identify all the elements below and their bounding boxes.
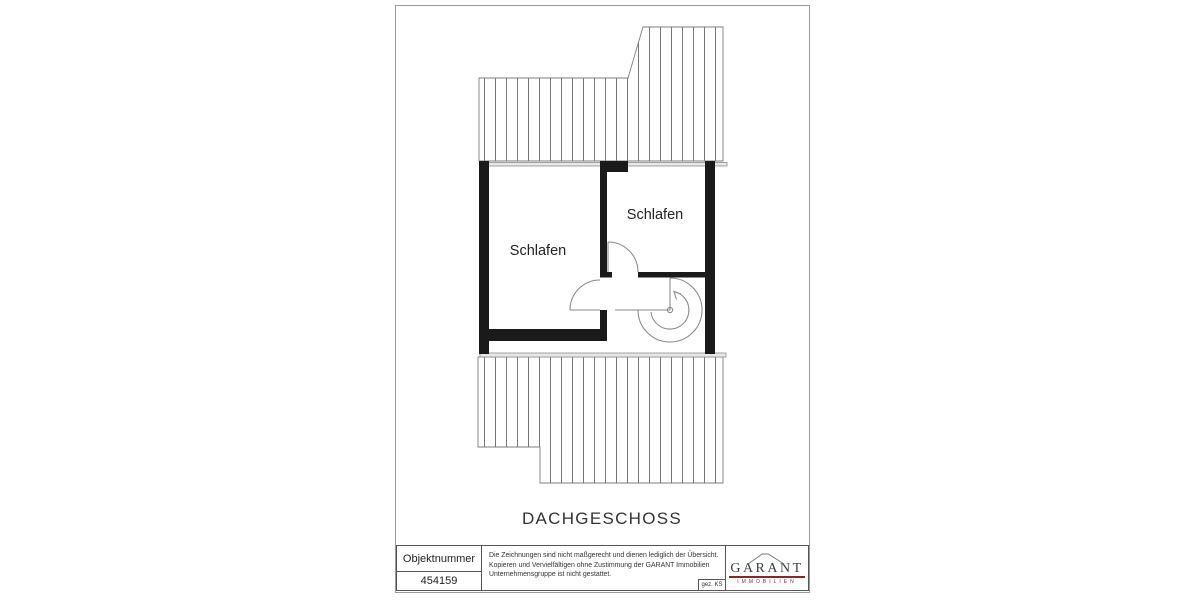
- door-left-bedroom: [570, 280, 600, 310]
- object-number-cell: Objektnummer 454159: [397, 546, 482, 590]
- object-number-label: Objektnummer: [403, 553, 475, 565]
- bottom-roof-hatch: [478, 357, 723, 483]
- disclaimer-line-2: Kopieren und Vervielfältigen ohne Zustim…: [489, 561, 725, 571]
- logo-subtitle: IMMOBILIEN: [729, 579, 804, 585]
- logo-roof-icon: [745, 552, 787, 565]
- drawn-by-text: gez. KS: [701, 582, 722, 588]
- logo-cell: GARANT IMMOBILIEN: [726, 546, 808, 590]
- door-right-bedroom: [608, 242, 638, 272]
- garant-logo: GARANT IMMOBILIEN: [729, 551, 804, 586]
- object-number-value: 454159: [421, 575, 458, 587]
- top-roof-hatch: [479, 27, 723, 161]
- disclaimer-line-3: Unternehmensgruppe ist nicht gestattet.: [489, 570, 725, 580]
- room-label-schlafen-left: Schlafen: [510, 243, 566, 259]
- title-block: Objektnummer 454159 Die Zeichnungen sind…: [396, 545, 809, 591]
- disclaimer-line-1: Die Zeichnungen sind nicht maßgerecht un…: [489, 551, 725, 561]
- drawn-by-box: gez. KS: [698, 579, 725, 590]
- spiral-staircase: [615, 278, 702, 342]
- room-label-schlafen-right: Schlafen: [627, 207, 683, 223]
- disclaimer-cell: Die Zeichnungen sind nicht maßgerecht un…: [482, 546, 726, 590]
- floor-title: DACHGESCHOSS: [522, 509, 682, 529]
